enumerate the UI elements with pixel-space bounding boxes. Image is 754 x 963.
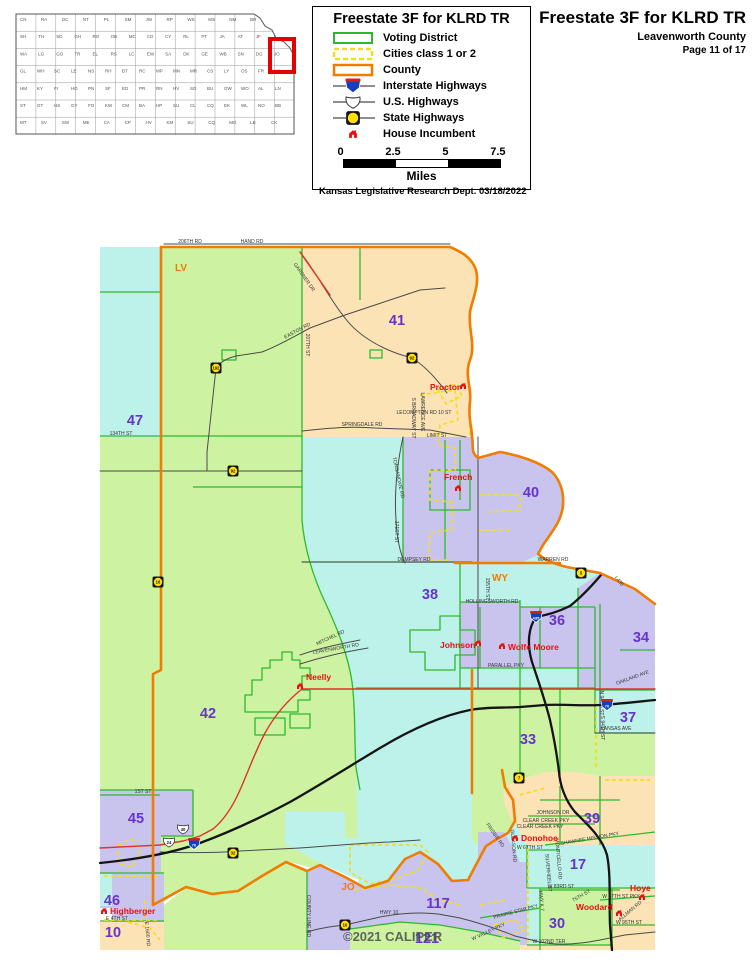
state-highway-shield-7: 7 [514, 773, 525, 784]
district-label-117: 117 [426, 896, 449, 912]
svg-text:24: 24 [167, 840, 172, 845]
road-label: HAND RD [241, 239, 264, 245]
district-label-33: 33 [520, 732, 536, 748]
road-label: 155TH ST [484, 578, 490, 601]
state-highway-shield-192: 192 [211, 363, 222, 374]
county-label-WY: WY [492, 573, 508, 584]
incumbent-name-highberger: Highberger [110, 906, 156, 916]
svg-text:70: 70 [192, 842, 197, 847]
county-label-JO: JO [341, 882, 355, 893]
svg-text:92: 92 [231, 469, 236, 474]
state-highway-shield-32: 32 [228, 848, 239, 859]
district-label-10: 10 [105, 925, 121, 941]
road-label: COUNTY LINE RD [305, 895, 311, 938]
svg-text:192: 192 [213, 366, 221, 371]
road-label: 207TH ST [304, 334, 310, 357]
svg-text:10: 10 [343, 923, 348, 928]
district-label-36: 36 [549, 613, 565, 629]
svg-text:40: 40 [181, 827, 186, 832]
incumbent-name-wolfe-moore: Wolfe Moore [508, 642, 559, 652]
road-label: DEMPSEY RD [398, 557, 431, 563]
road-label: S 94TH ST [599, 716, 605, 741]
district-label-34: 34 [633, 630, 649, 646]
district-label-42: 42 [200, 706, 216, 722]
district-label-47: 47 [127, 413, 143, 429]
map-copyright: ©2021 CALIPER [343, 929, 443, 944]
road-label: HWY 10 [380, 910, 399, 916]
road-label: 171ST ST [393, 521, 399, 543]
road-label: PARALLEL PKY [488, 663, 525, 669]
state-highway-shield-5: 5 [576, 568, 587, 579]
road-label: W 67TH ST [517, 845, 543, 851]
state-highway-shield-16: 16 [153, 577, 164, 588]
road-label: 1ST ST [135, 789, 152, 795]
road-label: LIMIT ST [427, 433, 447, 439]
district-label-39: 39 [584, 811, 600, 827]
road-label: E 4TH ST [106, 916, 128, 922]
county-district-map: 206TH RDHAND RDGARDNER DREASTON RD207TH … [0, 0, 754, 963]
road-label: S BROADWAY ST [410, 397, 416, 438]
road-label: 134TH ST [110, 431, 133, 437]
road-label: W 83RD ST [548, 884, 575, 890]
road-label: HOLLINGSWORTH RD [466, 599, 519, 605]
road-label: W 95TH ST [616, 920, 642, 926]
map-page: CNRADCNTPLSMJWRPWSMSNMBRDPSHTHSDGHROOBMC… [0, 0, 754, 963]
road-label: W 102ND TER [533, 939, 566, 945]
road-label: W 87TH ST PKY [602, 894, 640, 900]
road-label: SPRINGDALE RD [342, 422, 383, 428]
incumbent-name-proctor: Proctor [430, 382, 461, 392]
district-label-41: 41 [389, 313, 405, 329]
road-label: CLEAR CREEK PKY [517, 824, 564, 830]
state-highway-shield-92: 92 [228, 466, 239, 477]
state-highway-shield-92: 92 [407, 353, 418, 364]
district-label-37: 37 [620, 710, 636, 726]
incumbent-name-french: French [444, 472, 472, 482]
road-label: LAWRENCE AVE [419, 393, 425, 433]
svg-text:32: 32 [231, 851, 236, 856]
incumbent-name-neelly: Neelly [306, 672, 331, 682]
svg-text:16: 16 [156, 580, 161, 585]
road-label: WARREN RD [538, 557, 569, 563]
svg-text:92: 92 [410, 356, 415, 361]
road-label: JOHNSON DR [536, 810, 569, 816]
district-area-47 [100, 247, 161, 437]
incumbent-name-hoye: Hoye [630, 883, 651, 893]
incumbent-name-donohoe: Donohoe [521, 833, 558, 843]
district-label-40: 40 [523, 485, 539, 501]
incumbent-name-johnson: Johnson [440, 640, 475, 650]
incumbent-name-woodard: Woodard [576, 902, 613, 912]
house-incumbent-icon-highberger [101, 908, 107, 914]
county-label-LV: LV [175, 263, 187, 274]
district-label-45: 45 [128, 811, 144, 827]
district-label-30: 30 [549, 916, 565, 932]
district-area-41 [302, 247, 477, 437]
district-label-38: 38 [422, 587, 438, 603]
svg-text:70: 70 [605, 703, 610, 708]
district-label-17: 17 [570, 857, 586, 873]
road-label: 206TH RD [178, 239, 202, 245]
svg-text:435: 435 [533, 615, 540, 620]
